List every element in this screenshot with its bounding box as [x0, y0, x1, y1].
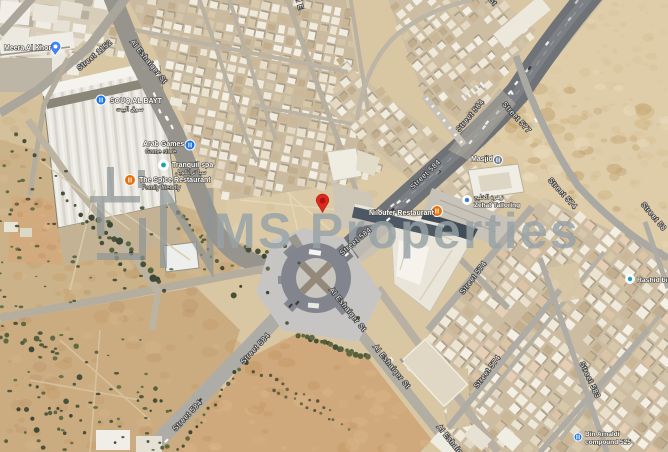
svg-text:Zehat Tailoring: Zehat Tailoring — [474, 202, 520, 209]
svg-text:Rashid bin: Rashid bin — [637, 277, 668, 284]
svg-text:Masjid: Masjid — [471, 156, 493, 163]
svg-text:سوق البيت: سوق البيت — [116, 106, 143, 113]
svg-text:Tranquil spa: Tranquil spa — [172, 162, 213, 169]
svg-text:Bin Arnaldi: Bin Arnaldi — [585, 431, 620, 438]
svg-text:Arab Games: Arab Games — [143, 141, 184, 148]
svg-text:Family friendly: Family friendly — [142, 186, 181, 192]
svg-text:Game store: Game store — [145, 150, 177, 156]
svg-text:Meera Al Khor: Meera Al Khor — [4, 45, 51, 52]
svg-text:سبا ترانكويل: سبا ترانكويل — [175, 169, 206, 176]
svg-text:SOUQ AL BAYT: SOUQ AL BAYT — [110, 98, 163, 105]
svg-text:زهرة الخليج: زهرة الخليج — [474, 194, 503, 201]
svg-text:Niloufer Restaurant: Niloufer Restaurant — [369, 210, 435, 217]
svg-text:compound 525: compound 525 — [585, 439, 631, 446]
svg-text:The Spice Restaurant: The Spice Restaurant — [139, 177, 211, 184]
